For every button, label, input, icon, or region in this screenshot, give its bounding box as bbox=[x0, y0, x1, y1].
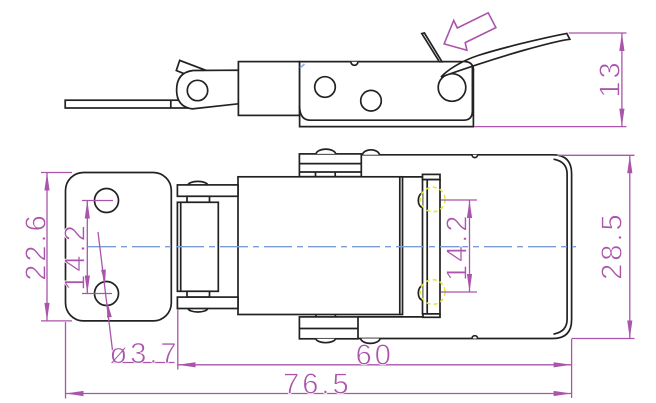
svg-text:14.2: 14.2 bbox=[60, 222, 92, 290]
svg-text:22.6: 22.6 bbox=[21, 212, 53, 280]
svg-text:76.5: 76.5 bbox=[283, 369, 351, 401]
svg-text:ø3.7: ø3.7 bbox=[109, 338, 179, 370]
svg-text:60: 60 bbox=[356, 339, 394, 371]
svg-text:13: 13 bbox=[595, 59, 627, 97]
svg-text:14.2: 14.2 bbox=[442, 213, 474, 281]
svg-text:28.5: 28.5 bbox=[597, 211, 629, 279]
